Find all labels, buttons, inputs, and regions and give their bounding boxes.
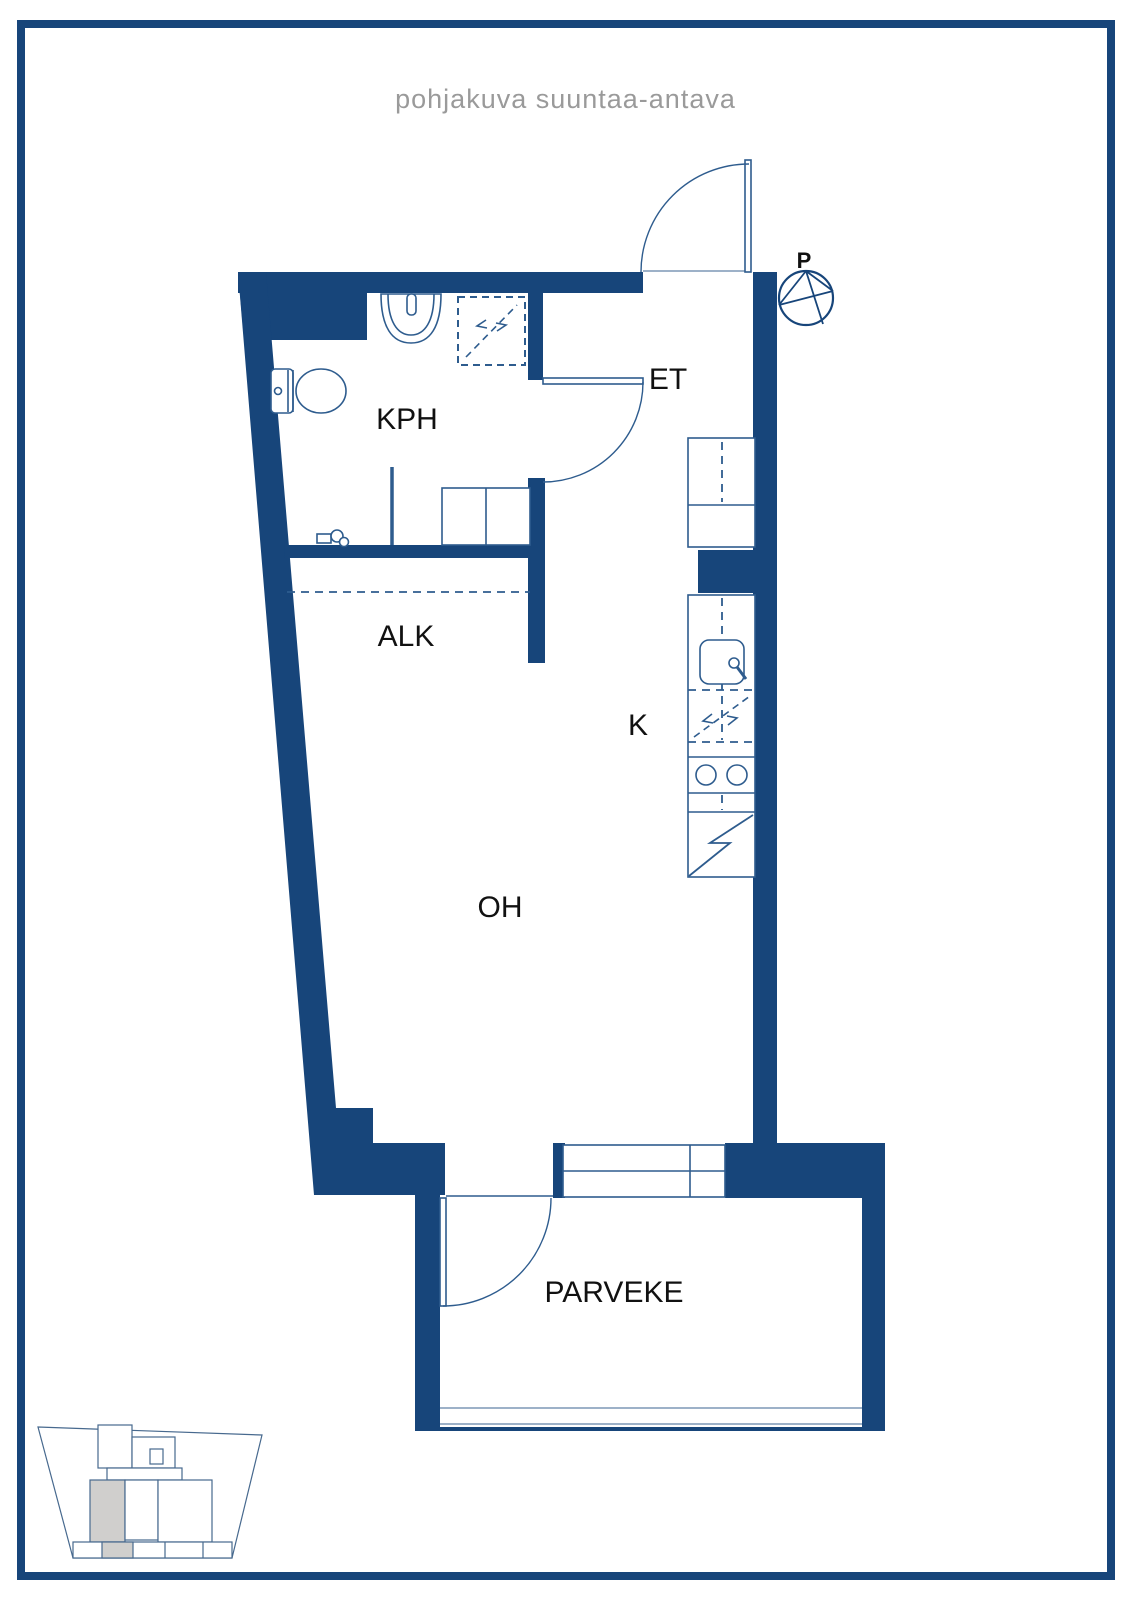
room-label-et: ET — [649, 363, 687, 396]
room-label-alk: ALK — [378, 620, 435, 653]
building-location-map — [38, 1425, 262, 1558]
balcony-door — [440, 1196, 553, 1306]
entry-closet — [688, 438, 755, 547]
bathroom-cabinet — [442, 488, 530, 545]
shower-icon — [458, 297, 525, 365]
compass-icon: P — [779, 248, 833, 325]
room-label-k: K — [628, 709, 648, 742]
walls-layer — [238, 272, 885, 1431]
washer-tap-icon — [317, 530, 349, 547]
balcony-door-leaf — [440, 1198, 446, 1306]
compass-label: P — [797, 248, 812, 273]
highlighted-unit — [90, 1480, 125, 1542]
balcony-railing — [440, 1408, 862, 1424]
floor-plan-svg: P KPH ET ALK K OH PARVEKE — [0, 0, 1131, 1600]
bathroom-door-leaf — [543, 378, 643, 384]
toilet-icon — [271, 369, 346, 413]
kitchen-counter — [688, 595, 755, 877]
bathroom-door — [543, 378, 643, 482]
balcony-window — [563, 1145, 725, 1197]
entrance-door — [641, 160, 751, 272]
kitchen-sink-icon — [700, 640, 746, 684]
room-label-oh: OH — [478, 891, 523, 924]
entrance-door-arc — [641, 164, 749, 272]
room-label-parveke: PARVEKE — [545, 1276, 684, 1309]
sink-icon — [381, 294, 441, 343]
balcony-door-arc — [443, 1198, 551, 1306]
bathroom-door-arc — [543, 382, 643, 482]
entrance-door-leaf — [745, 160, 751, 272]
room-label-kph: KPH — [376, 403, 438, 436]
highlighted-unit-lower — [102, 1542, 133, 1558]
floor-plan-page: pohjakuva suuntaa-antava — [0, 0, 1131, 1600]
